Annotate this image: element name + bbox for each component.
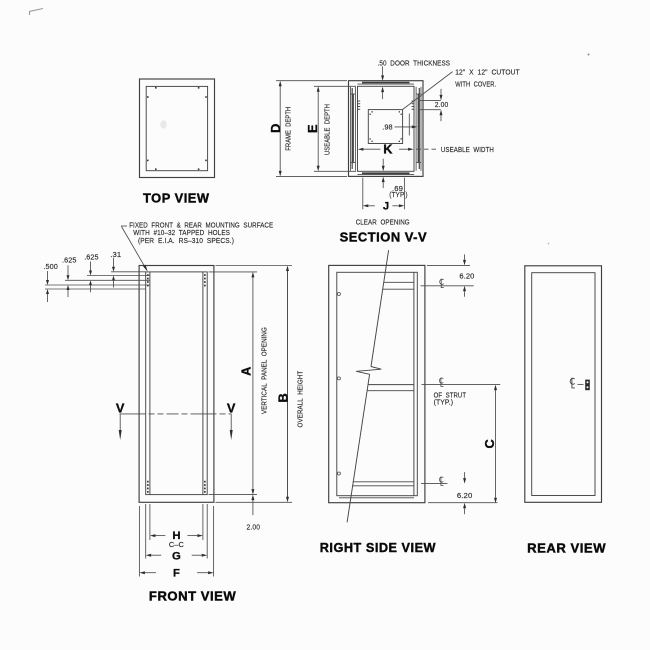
svg-text:REAR VIEW: REAR VIEW — [527, 541, 606, 555]
svg-text:C–C: C–C — [169, 540, 184, 549]
svg-text:FRONT VIEW: FRONT VIEW — [149, 590, 236, 604]
svg-text:J: J — [383, 200, 389, 212]
svg-text:.500: .500 — [43, 262, 58, 271]
svg-text:.625: .625 — [84, 253, 99, 262]
svg-text:G: G — [172, 550, 181, 562]
svg-text:B: B — [276, 393, 291, 402]
svg-text:OVERALL HEIGHT: OVERALL HEIGHT — [296, 371, 305, 428]
svg-text:6.20: 6.20 — [457, 491, 473, 500]
svg-text:.625: .625 — [62, 255, 77, 264]
svg-text:12" X 12" CUTOUT: 12" X 12" CUTOUT — [455, 68, 520, 77]
svg-text:6.20: 6.20 — [459, 272, 474, 281]
svg-text:CLEAR OPENING: CLEAR OPENING — [356, 218, 410, 227]
svg-text:(TYP.): (TYP.) — [389, 190, 408, 199]
svg-text:2.00: 2.00 — [435, 100, 449, 109]
svg-text:SECTION V-V: SECTION V-V — [340, 231, 428, 245]
svg-text:2.00: 2.00 — [247, 523, 261, 532]
svg-text:TOP VIEW: TOP VIEW — [143, 191, 210, 205]
svg-text:.31: .31 — [110, 250, 121, 259]
svg-text:(TYP.): (TYP.) — [434, 398, 454, 407]
svg-text:K: K — [383, 142, 393, 157]
svg-text:V: V — [116, 400, 125, 415]
svg-text:FRAME DEPTH: FRAME DEPTH — [284, 107, 293, 151]
svg-text:A: A — [238, 367, 253, 376]
svg-text:.50 DOOR THICKNESS: .50 DOOR THICKNESS — [378, 58, 451, 67]
svg-text:VERTICAL PANEL OPENING: VERTICAL PANEL OPENING — [260, 327, 269, 414]
svg-text:E: E — [305, 124, 320, 133]
svg-text:V: V — [227, 400, 236, 415]
svg-text:USEABLE WIDTH: USEABLE WIDTH — [441, 145, 494, 154]
svg-text:USEABLE DEPTH: USEABLE DEPTH — [322, 104, 331, 155]
svg-text:WITH COVER.: WITH COVER. — [455, 79, 496, 88]
svg-text:(PER E.I.A. RS–310 SPECS.): (PER E.I.A. RS–310 SPECS.) — [138, 236, 234, 245]
svg-text:.98: .98 — [382, 123, 393, 132]
svg-text:RIGHT SIDE VIEW: RIGHT SIDE VIEW — [320, 541, 436, 555]
svg-text:C: C — [482, 439, 497, 448]
svg-text:D: D — [268, 124, 283, 133]
svg-text:F: F — [173, 568, 180, 580]
